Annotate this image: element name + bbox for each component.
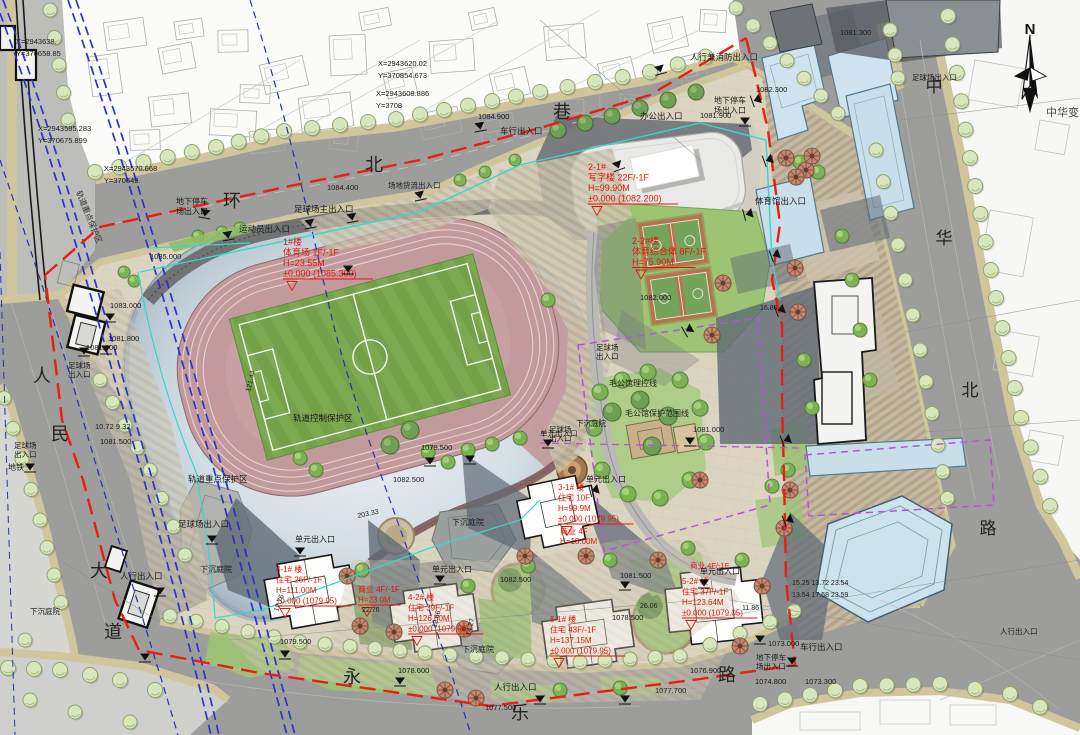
svg-text:足球场: 足球场: [14, 440, 37, 450]
svg-text:毛公馆理控线: 毛公馆理控线: [609, 378, 657, 388]
svg-text:1081.600: 1081.600: [86, 343, 117, 352]
svg-text:26.06: 26.06: [640, 603, 658, 610]
svg-text:单元出入口: 单元出入口: [432, 564, 472, 574]
svg-text:场地货流出入口: 场地货流出入口: [388, 180, 441, 190]
svg-text:人行出入口: 人行出入口: [1000, 626, 1038, 636]
svg-text:体育综合体 8F/-1F: 体育综合体 8F/-1F: [632, 246, 707, 257]
svg-text:X=2943608.886: X=2943608.886: [376, 89, 429, 98]
svg-text:1079.500: 1079.500: [421, 443, 452, 452]
svg-text:民: 民: [51, 424, 69, 444]
svg-text:1#楼: 1#楼: [283, 236, 302, 247]
svg-text:单元出入口: 单元出入口: [586, 474, 626, 484]
svg-text:北: 北: [962, 381, 979, 400]
svg-text:体育馆出入口: 体育馆出入口: [755, 196, 806, 206]
svg-text:住宅 43F/-1F: 住宅 43F/-1F: [550, 625, 596, 635]
svg-text:人行出入口: 人行出入口: [494, 682, 537, 692]
svg-text:出入口: 出入口: [14, 449, 37, 459]
svg-text:华: 华: [936, 229, 953, 248]
svg-text:下沉庭院: 下沉庭院: [200, 564, 232, 574]
svg-text:下沉庭院: 下沉庭院: [462, 644, 494, 654]
svg-text:5-1# 楼: 5-1# 楼: [550, 614, 576, 624]
svg-text:办公出入口: 办公出入口: [640, 111, 683, 121]
svg-text:H=111.00M: H=111.00M: [276, 586, 317, 595]
svg-text:下沉庭院: 下沉庭院: [452, 517, 484, 527]
svg-text:13.54 17.58 23.59: 13.54 17.58 23.59: [792, 592, 849, 599]
svg-text:轨道重点保护区: 轨道重点保护区: [188, 474, 248, 484]
svg-text:X=2943638.: X=2943638.: [16, 37, 57, 46]
svg-text:足球场: 足球场: [596, 342, 619, 352]
svg-text:1081.500: 1081.500: [100, 437, 131, 446]
svg-text:1081.500: 1081.500: [620, 571, 651, 580]
svg-text:足球场出入口: 足球场出入口: [178, 519, 229, 529]
svg-text:1078.500: 1078.500: [612, 613, 643, 622]
svg-text:2-1#: 2-1#: [588, 162, 606, 172]
svg-text:中华变: 中华变: [1046, 105, 1079, 119]
svg-text:轨道控制保护区: 轨道控制保护区: [293, 413, 353, 423]
svg-text:10.72 9.32: 10.72 9.32: [95, 422, 130, 431]
svg-text:1081.900: 1081.900: [700, 111, 731, 120]
svg-text:足球场: 足球场: [68, 360, 91, 370]
svg-text:人行出入口: 人行出入口: [120, 571, 163, 581]
svg-text:商业 4F/-1F: 商业 4F/-1F: [358, 584, 400, 594]
svg-text:环: 环: [223, 191, 241, 211]
svg-text:运动员出入口: 运动员出入口: [239, 224, 290, 234]
svg-text:人: 人: [33, 366, 51, 386]
svg-text:±0.000 (1079.95): ±0.000 (1079.95): [558, 515, 619, 524]
svg-text:H=99.90M: H=99.90M: [588, 183, 630, 193]
svg-text:大: 大: [90, 561, 108, 581]
svg-text:下沉庭院: 下沉庭院: [576, 418, 606, 428]
svg-text:1079.500: 1079.500: [280, 637, 311, 646]
svg-text:1073.000: 1073.000: [768, 639, 799, 648]
svg-text:住宅 39F/-1F: 住宅 39F/-1F: [408, 603, 454, 613]
svg-text:H=75.90M: H=75.90M: [632, 257, 674, 267]
svg-text:1084.900: 1084.900: [478, 112, 509, 121]
svg-text:道: 道: [104, 622, 122, 642]
svg-text:足球场出入口: 足球场出入口: [912, 72, 957, 82]
svg-text:Y=370649.: Y=370649.: [104, 176, 141, 185]
svg-text:1084.400: 1084.400: [327, 183, 358, 192]
svg-text:1081.800: 1081.800: [108, 334, 139, 343]
svg-text:场出入口: 场出入口: [756, 661, 786, 671]
svg-text:单元出入口: 单元出入口: [540, 428, 578, 438]
svg-text:1076.900: 1076.900: [690, 666, 721, 675]
svg-text:±0.000 (1082.200): ±0.000 (1082.200): [588, 194, 662, 204]
svg-text:H=123.64M: H=123.64M: [682, 598, 724, 607]
svg-text:车行出入口: 车行出入口: [500, 126, 543, 136]
svg-text:1082.500: 1082.500: [500, 575, 531, 584]
svg-text:15.25 13.72 23.54: 15.25 13.72 23.54: [792, 580, 849, 587]
svg-text:H=18.00M: H=18.00M: [560, 537, 597, 546]
svg-text:1074.800: 1074.800: [755, 677, 786, 686]
svg-text:1083.000: 1083.000: [110, 301, 141, 310]
svg-text:H=23.0M: H=23.0M: [358, 596, 391, 605]
svg-text:住宅 26F/-1F: 住宅 26F/-1F: [276, 575, 322, 585]
svg-text:H=23.55M: H=23.55M: [283, 258, 325, 268]
svg-text:商业 4F: 商业 4F: [560, 526, 588, 536]
svg-text:写字楼 22F/-1F: 写字楼 22F/-1F: [588, 172, 650, 183]
svg-text:永: 永: [343, 667, 361, 687]
svg-text:巷: 巷: [553, 102, 571, 122]
svg-text:人行兼消防出入口: 人行兼消防出入口: [690, 52, 758, 62]
svg-text:2-2#楼: 2-2#楼: [632, 235, 659, 246]
svg-text:1078.600: 1078.600: [398, 666, 429, 675]
svg-text:出入口: 出入口: [68, 369, 91, 379]
svg-text:1081.000: 1081.000: [693, 425, 724, 434]
svg-text:地下停车: 地下停车: [714, 95, 746, 105]
svg-text:X=2943620.02: X=2943620.02: [378, 59, 427, 68]
svg-text:1073.300: 1073.300: [805, 677, 836, 686]
svg-text:足球场主出入口: 足球场主出入口: [294, 204, 354, 214]
svg-text:北: 北: [365, 155, 383, 175]
svg-text:±0.000 (1079.05): ±0.000 (1079.05): [682, 609, 743, 618]
svg-text:3-1# 楼: 3-1# 楼: [558, 482, 584, 492]
svg-text:X=2943570.668: X=2943570.668: [104, 164, 157, 173]
svg-text:N: N: [1025, 21, 1036, 38]
svg-text:地下停车: 地下停车: [176, 196, 208, 206]
svg-text:1077.500: 1077.500: [485, 703, 516, 712]
svg-text:1082.500: 1082.500: [393, 475, 424, 484]
svg-text:Y=370658.85: Y=370658.85: [16, 49, 61, 58]
svg-text:Y=370854.673: Y=370854.673: [378, 71, 427, 80]
svg-text:X=2943585.283: X=2943585.283: [38, 124, 91, 133]
svg-text:4-1# 楼: 4-1# 楼: [276, 564, 302, 574]
svg-text:Y=370675.899: Y=370675.899: [38, 136, 87, 145]
svg-text:11.86: 11.86: [742, 605, 759, 612]
svg-text:H=126.60M: H=126.60M: [408, 614, 450, 623]
svg-text:±0.000 (1079.95): ±0.000 (1079.95): [550, 647, 611, 656]
svg-text:22.76: 22.76: [362, 607, 380, 614]
svg-text:Y=3708: Y=3708: [376, 101, 402, 110]
svg-text:住宅 10F: 住宅 10F: [558, 493, 590, 503]
svg-text:地下停车: 地下停车: [756, 652, 786, 662]
svg-text:地铁: 地铁: [8, 462, 24, 472]
svg-text:车行出入口: 车行出入口: [800, 642, 843, 652]
svg-text:毛公馆保护范围线: 毛公馆保护范围线: [625, 408, 689, 418]
svg-text:单元出入口: 单元出入口: [295, 534, 335, 544]
svg-text:出入口: 出入口: [596, 351, 619, 361]
svg-text:路: 路: [980, 519, 997, 538]
svg-text:1077.700: 1077.700: [655, 686, 686, 695]
svg-text:1082.300: 1082.300: [756, 85, 787, 94]
svg-text:1082.000: 1082.000: [640, 293, 671, 302]
svg-text:1081.300: 1081.300: [840, 28, 871, 37]
svg-text:单元出入口: 单元出入口: [700, 566, 740, 576]
svg-text:4-2# 楼: 4-2# 楼: [408, 592, 434, 602]
svg-text:下沉庭院: 下沉庭院: [30, 606, 60, 616]
svg-text:1085.000: 1085.000: [150, 252, 181, 261]
svg-text:H=99.9M: H=99.9M: [558, 504, 591, 513]
svg-text:体育场 1F/-1F: 体育场 1F/-1F: [283, 247, 340, 258]
svg-text:H=137.15M: H=137.15M: [550, 636, 592, 645]
